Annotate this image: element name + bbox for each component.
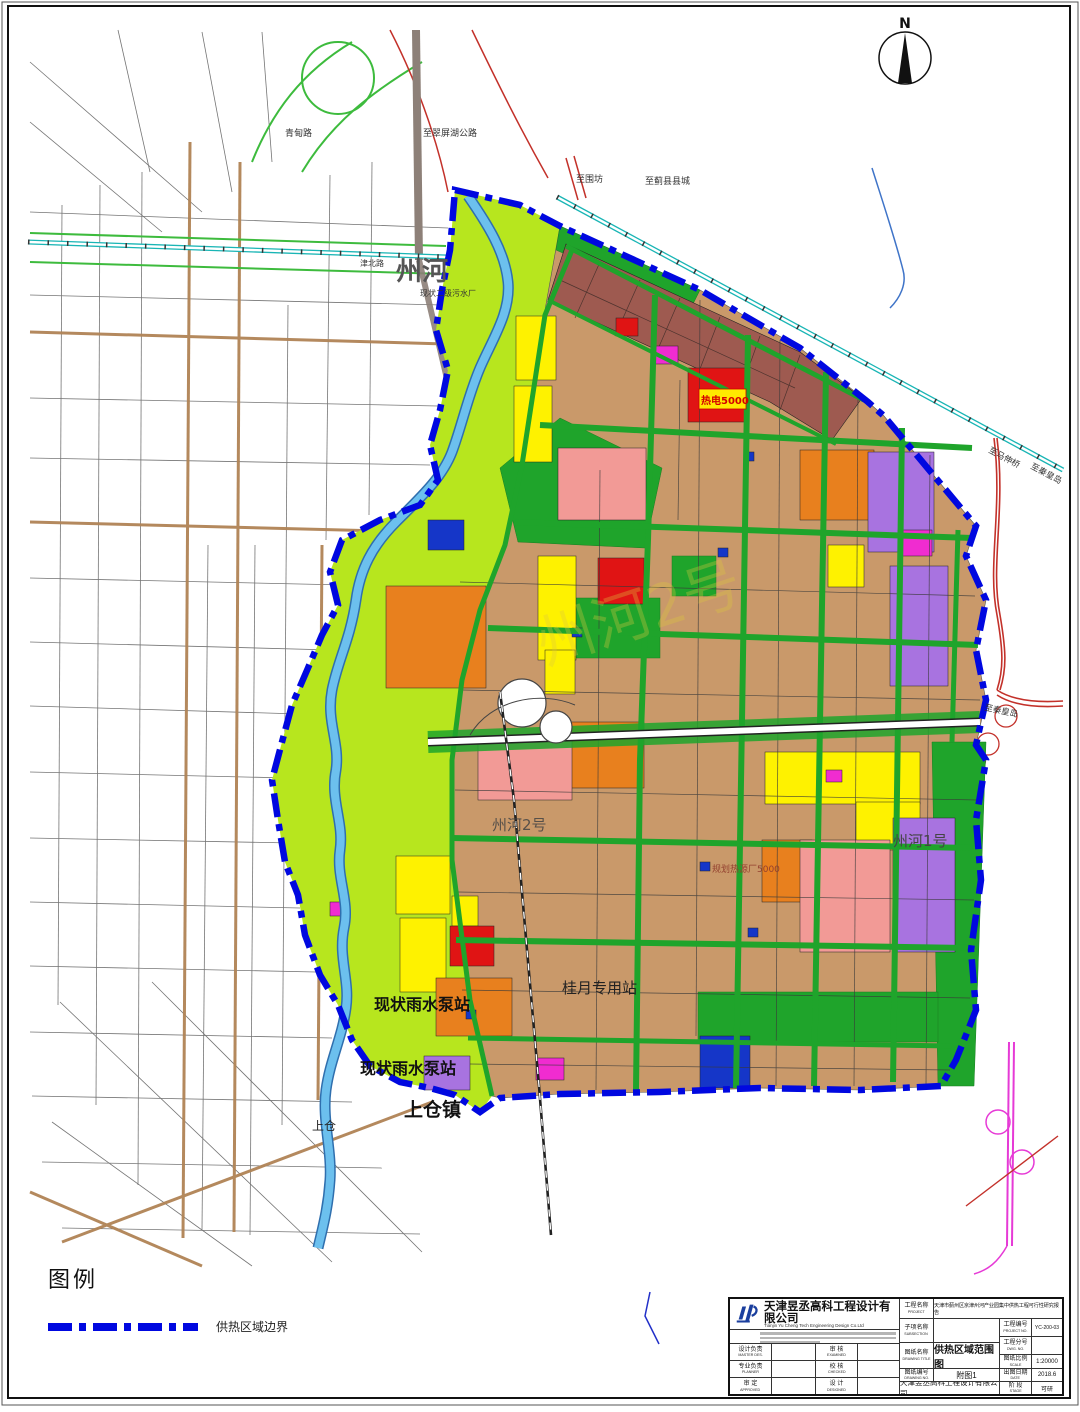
boundary-line-swatch bbox=[48, 1323, 198, 1331]
checked-label: 校 核CHECKED bbox=[816, 1361, 858, 1378]
examined-signature bbox=[858, 1344, 900, 1361]
expwy-label-qinhuangdao: 至秦皇岛 bbox=[983, 702, 1019, 720]
zhouhe-no2-label: 州河2号 bbox=[492, 816, 547, 834]
road-label-weifang: 至围坊 bbox=[576, 173, 603, 185]
scale-label: 图纸比例SCALE bbox=[1000, 1355, 1032, 1369]
stage-label: 阶 段STAGE bbox=[1000, 1382, 1032, 1394]
designed-label: 设 计DESIGNED bbox=[816, 1378, 858, 1394]
shangcang-label: 上仓 bbox=[312, 1119, 336, 1133]
zhouhe-no1-label: 州河1号 bbox=[893, 832, 948, 850]
company-address-block bbox=[730, 1329, 900, 1343]
scale-value: 1:20000 bbox=[1032, 1355, 1062, 1369]
map-canvas: 州河2号 青甸路 至翠屏湖公路 至围坊 至蓟县县城 津北路 州河 现状二级污水厂… bbox=[0, 0, 1080, 1407]
master-des-label: 设计负责MASTER DES. bbox=[730, 1344, 772, 1361]
road-label-qingdian: 青甸路 bbox=[285, 127, 312, 139]
blue-line-bottom bbox=[645, 1292, 659, 1344]
shangcang-town-label: 上仓镇 bbox=[404, 1098, 461, 1121]
project-no-label: 工程编号PROJECT NO. bbox=[1000, 1319, 1032, 1337]
project-name-value: 天津市蓟州区京津州河产业园集中供热工程可行性研究报告 bbox=[934, 1299, 1062, 1319]
rain-pump-label-2: 现状雨水泵站 bbox=[360, 1059, 456, 1078]
company-name-cn: 天津昱丞高科工程设计有限公司 bbox=[764, 1300, 900, 1324]
road-label-cuipinghu: 至翠屏湖公路 bbox=[423, 127, 477, 139]
project-label: 工程名称PROJECT bbox=[900, 1299, 934, 1319]
guiyue-station-label: 桂月专用站 bbox=[562, 979, 637, 997]
footer-company-name: 天津昱丞高科工程设计有限公司 bbox=[900, 1382, 1000, 1394]
sub-no-label: 工程分号DWG. NO. bbox=[1000, 1337, 1032, 1355]
approved-label: 审 定APPROVED bbox=[730, 1378, 772, 1394]
north-arrow-needle bbox=[898, 33, 912, 83]
legend-item-boundary: 供热区域边界 bbox=[48, 1318, 368, 1335]
approved-signature bbox=[772, 1378, 816, 1394]
address-line bbox=[760, 1332, 896, 1335]
north-arrow: N bbox=[879, 16, 931, 84]
legend: 图例 供热区域边界 bbox=[48, 1262, 368, 1342]
heat-plant-5000-label: 热电5000 bbox=[701, 394, 749, 407]
sub-no-value bbox=[1032, 1337, 1062, 1355]
road-label-jixian: 至蓟县县城 bbox=[645, 175, 690, 187]
sewage-plant-label: 现状二级污水厂 bbox=[420, 288, 476, 298]
planner-label: 专业负责PLANNER bbox=[730, 1361, 772, 1378]
address-line bbox=[760, 1337, 896, 1340]
title-block-left: 天津昱丞高科工程设计有限公司 Tianjin Yu Cheng Tech Eng… bbox=[730, 1299, 900, 1394]
legend-title: 图例 bbox=[48, 1262, 368, 1294]
examined-label: 审 核EXAMINED bbox=[816, 1344, 858, 1361]
green-rural-roads bbox=[30, 42, 446, 274]
staff-sign-grid: 设计负责MASTER DES. 审 核EXAMINED 专业负责PLANNER … bbox=[730, 1343, 900, 1394]
planner-signature bbox=[772, 1361, 816, 1378]
stream-top-right bbox=[872, 168, 904, 308]
stage-value: 可研 bbox=[1032, 1382, 1062, 1394]
title-block: 天津昱丞高科工程设计有限公司 Tianjin Yu Cheng Tech Eng… bbox=[728, 1297, 1064, 1396]
drawing-title-label: 图纸名称DRAWING TITLE bbox=[900, 1343, 934, 1369]
road-label-jinbei: 津北路 bbox=[360, 258, 384, 268]
master-des-signature bbox=[772, 1344, 816, 1361]
drawing-no-value: 附图1 bbox=[934, 1369, 1000, 1382]
north-arrow-label: N bbox=[899, 16, 911, 32]
designed-signature bbox=[858, 1378, 900, 1394]
date-label: 出图日期DATE bbox=[1000, 1369, 1032, 1382]
planned-heat-source-label: 规划热源厂5000 bbox=[712, 863, 780, 875]
drawing-no-label: 图纸编号DRAWING NO. bbox=[900, 1369, 934, 1382]
subsection-value bbox=[934, 1319, 1000, 1343]
date-value: 2018.6 bbox=[1032, 1369, 1062, 1382]
company-logo bbox=[733, 1300, 761, 1328]
interchange-bottom-right bbox=[966, 1042, 1058, 1274]
rain-pump-label-1: 现状雨水泵站 bbox=[374, 995, 470, 1014]
map-sheet: 州河2号 青甸路 至翠屏湖公路 至围坊 至蓟县县城 津北路 州河 现状二级污水厂… bbox=[0, 0, 1080, 1412]
grey-main-road bbox=[416, 30, 419, 260]
title-block-right: 工程名称PROJECT 天津市蓟州区京津州河产业园集中供热工程可行性研究报告 子… bbox=[900, 1299, 1062, 1394]
checked-signature bbox=[858, 1361, 900, 1378]
river-name-label: 州河 bbox=[396, 257, 448, 287]
project-no-value: YC-200-03 bbox=[1032, 1319, 1062, 1337]
company-name-en: Tianjin Yu Cheng Tech Engineering Design… bbox=[764, 1324, 900, 1329]
legend-item-label: 供热区域边界 bbox=[216, 1318, 288, 1335]
company-header: 天津昱丞高科工程设计有限公司 Tianjin Yu Cheng Tech Eng… bbox=[730, 1299, 900, 1329]
subsection-label: 子项名称SUBSECTION bbox=[900, 1319, 934, 1343]
drawing-title-value: 供热区域范围图 bbox=[934, 1343, 1000, 1369]
rail-label-mashenqiao: 至马伸桥 bbox=[987, 445, 1023, 471]
